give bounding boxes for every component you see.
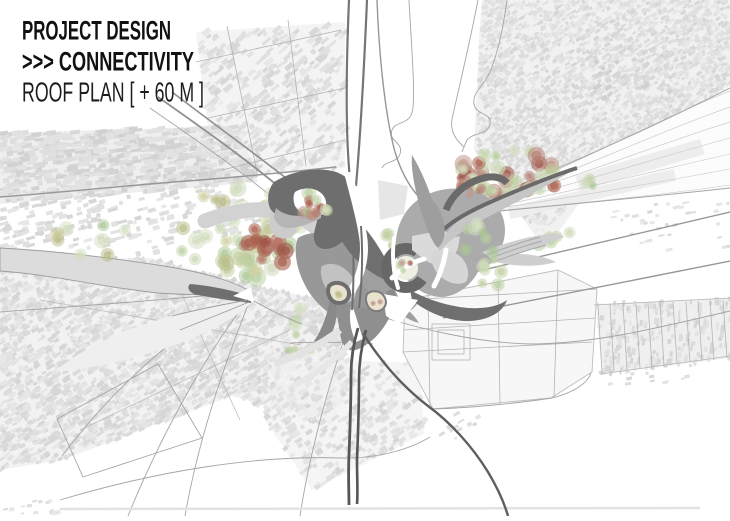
svg-text:>>> CONNECTIVITY: >>> CONNECTIVITY [22, 47, 194, 77]
svg-text:ROOF PLAN [ + 60 M ]: ROOF PLAN [ + 60 M ] [22, 77, 204, 108]
svg-text:PROJECT DESIGN: PROJECT DESIGN [22, 16, 171, 46]
